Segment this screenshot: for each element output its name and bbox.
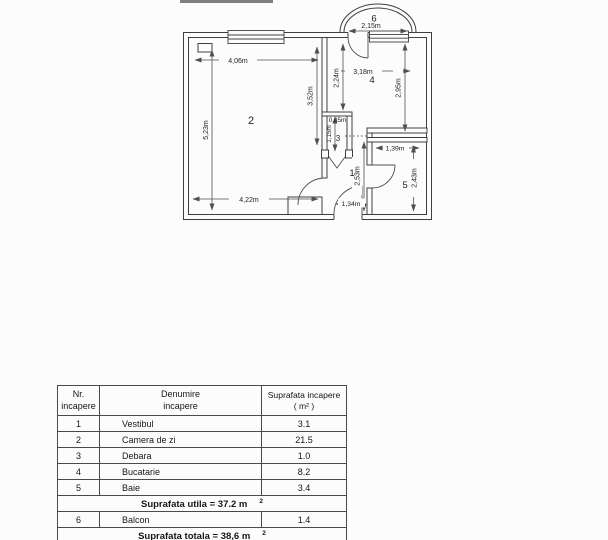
- closet-top-wall: [322, 112, 352, 116]
- dim-label-2-24: 2,24m: [334, 68, 341, 88]
- row-name: Balcon: [100, 512, 262, 528]
- dim-label-1-34: 1,34m: [342, 201, 361, 208]
- dim-label-0-85: 0,85m: [329, 117, 347, 124]
- room-number-kitchen: 4: [369, 75, 374, 86]
- header-nr-line1: Nr.: [58, 389, 99, 400]
- wall-living-hall: [322, 158, 327, 178]
- window-living-room: [228, 31, 284, 44]
- room-number-living: 2: [248, 115, 254, 127]
- row-nr: 6: [58, 512, 100, 528]
- window-balcony: [370, 31, 409, 42]
- header-area-line1: Suprafata incapere: [262, 390, 346, 401]
- header-name-line1: Denumire: [100, 389, 261, 400]
- dim-label-5-23: 5,23m: [203, 120, 210, 140]
- row-area: 1.0: [262, 448, 347, 464]
- closet-jamb-left: [322, 150, 329, 158]
- total-area-sup: 2: [262, 530, 266, 537]
- row-name: Baie: [100, 480, 262, 496]
- table-row: 2 Camera de zi 21.5: [58, 432, 347, 448]
- wall-step-block: [288, 197, 322, 215]
- dim-label-4-22: 4,22m: [239, 197, 259, 204]
- dim-label-1-39: 1,39m: [386, 146, 405, 153]
- dim-label-2-43: 2,43m: [412, 168, 419, 188]
- floor-plan-drawing: 4,06m 5,23m 4,22m 3,52m 2,15m 3,18m 2,24…: [0, 0, 608, 378]
- table-row: 6 Balcon 1.4: [58, 512, 347, 528]
- total-row: Suprafata totala = 38,6 m2: [58, 528, 347, 540]
- table-row: 4 Bucatarie 8.2: [58, 464, 347, 480]
- room-number-balcony: 6: [371, 14, 376, 25]
- row-nr: 3: [58, 448, 100, 464]
- row-area: 3.1: [262, 416, 347, 432]
- room-number-closet: 3: [336, 134, 341, 143]
- dim-label-1-15: 1,15m: [326, 125, 333, 143]
- dimension-labels: 4,06m 5,23m 4,22m 3,52m 2,15m 3,18m 2,24…: [203, 23, 419, 208]
- balcony-door-arc: [348, 37, 368, 58]
- row-name: Bucatarie: [100, 464, 262, 480]
- useful-area-text: Suprafata utila = 37.2 m: [141, 499, 247, 510]
- bath-door-arc: [372, 165, 395, 188]
- row-nr: 1: [58, 416, 100, 432]
- header-nr-line2: incapere: [58, 401, 99, 412]
- row-name: Vestibul: [100, 416, 262, 432]
- entry-opening: [334, 214, 362, 220]
- row-nr: 5: [58, 480, 100, 496]
- dim-label-3-52: 3,52m: [308, 86, 315, 106]
- total-area-cell: Suprafata totala = 38,6 m2: [58, 528, 347, 540]
- wall-living-kitchen: [322, 38, 327, 113]
- useful-area-cell: Suprafata utila = 37.2 m2: [58, 496, 347, 512]
- table-header-row: Nr. incapere Denumire incapere Suprafata…: [58, 386, 347, 416]
- scanned-floor-plan-page: 4,06m 5,23m 4,22m 3,52m 2,15m 3,18m 2,24…: [0, 0, 608, 540]
- total-area-text: Suprafata totala = 38,6 m: [138, 531, 250, 540]
- header-name-line2: incapere: [100, 401, 261, 412]
- header-name: Denumire incapere: [100, 386, 262, 416]
- row-area: 3.4: [262, 480, 347, 496]
- row-area: 1.4: [262, 512, 347, 528]
- dim-label-4-06: 4,06m: [228, 58, 248, 65]
- subtotal-row: Suprafata utila = 37.2 m2: [58, 496, 347, 512]
- table-row: 5 Baie 3.4: [58, 480, 347, 496]
- balcony-door-opening: [348, 32, 368, 38]
- wall-notch: [198, 44, 212, 53]
- header-area-line2: ( m² ): [262, 401, 346, 412]
- row-name: Debara: [100, 448, 262, 464]
- closet-jamb-right: [346, 150, 353, 158]
- row-area: 8.2: [262, 464, 347, 480]
- room-areas-table: Nr. incapere Denumire incapere Suprafata…: [57, 385, 347, 540]
- bath-top-wall: [367, 138, 427, 143]
- header-area: Suprafata incapere ( m² ): [262, 386, 347, 416]
- useful-area-sup: 2: [259, 498, 263, 505]
- room-number-hall: 1: [349, 168, 354, 179]
- kitchen-bottom-wall: [367, 128, 427, 133]
- closet-folding-door: [329, 157, 345, 168]
- row-nr: 4: [58, 464, 100, 480]
- dim-label-2-53: 2,53m: [355, 166, 362, 186]
- header-nr: Nr. incapere: [58, 386, 100, 416]
- row-name: Camera de zi: [100, 432, 262, 448]
- table-row: 1 Vestibul 3.1: [58, 416, 347, 432]
- room-number-bath: 5: [402, 180, 407, 191]
- wall-hall-bath-lower: [367, 188, 372, 215]
- table-row: 3 Debara 1.0: [58, 448, 347, 464]
- row-area: 21.5: [262, 432, 347, 448]
- row-nr: 2: [58, 432, 100, 448]
- dim-label-2-95: 2,95m: [396, 78, 403, 98]
- scan-artifact: [180, 0, 273, 3]
